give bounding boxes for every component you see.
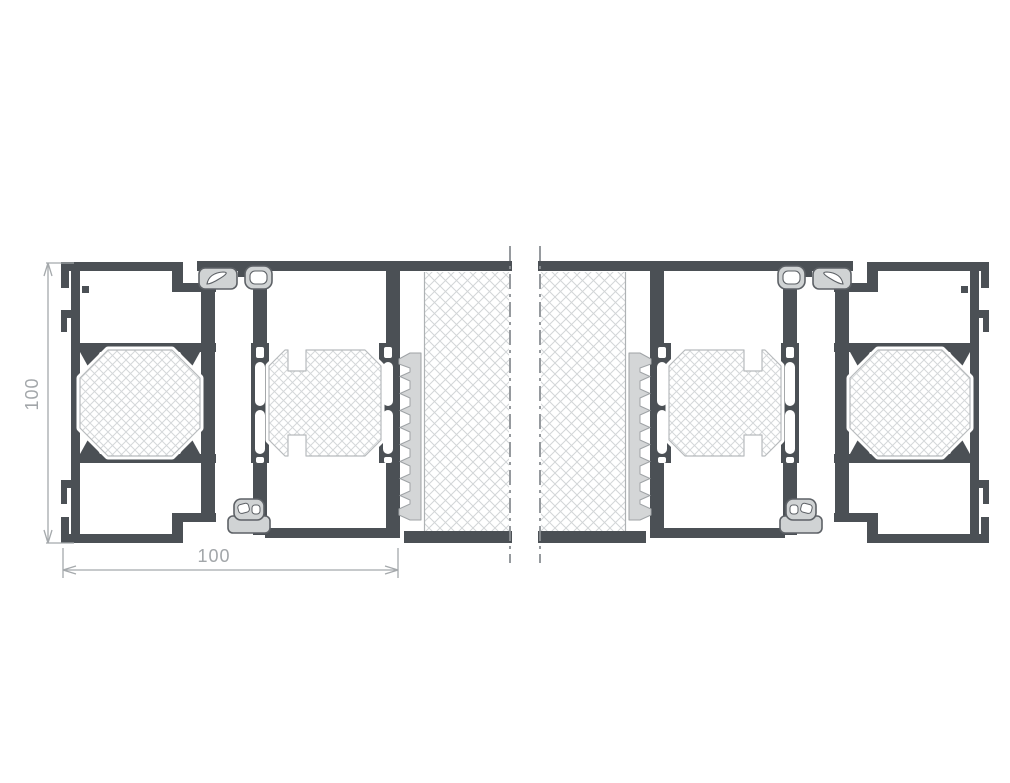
width-dimension-label: 100	[197, 546, 230, 566]
slot	[256, 347, 264, 358]
slot	[256, 457, 264, 463]
wall-panel	[424, 272, 509, 531]
frame-tab-lower-lip	[61, 480, 67, 504]
slot	[383, 362, 393, 406]
height-dimension-label: 100	[22, 377, 42, 410]
technical-drawing-page: 100 100	[0, 0, 1010, 783]
gasket-top	[199, 266, 272, 289]
thermal-break-insulation	[269, 350, 381, 456]
wall-panel-hatch	[424, 272, 509, 531]
profile-cross-section-drawing: 100 100	[0, 0, 1010, 783]
frame-bottom-wall	[63, 534, 177, 543]
brush-seal	[399, 353, 421, 520]
frame-inner-nub	[82, 286, 89, 293]
frame-top-corner-lip	[61, 262, 69, 288]
dimension-vertical	[44, 263, 74, 543]
frame-tab-upper-lip	[61, 310, 67, 332]
left-assembly	[61, 246, 512, 563]
frame-top-wall	[63, 262, 177, 271]
frame-bottom-corner-lip	[61, 517, 69, 543]
right-assembly	[538, 246, 989, 563]
sash-bottom-bar	[265, 528, 400, 538]
panel-bottom-bar	[404, 531, 512, 543]
slot	[384, 457, 392, 463]
slot	[383, 410, 393, 454]
slot	[255, 362, 265, 406]
thermal-break-insulation	[80, 350, 200, 456]
gasket-top-right-slot	[250, 271, 267, 284]
slot	[384, 347, 392, 358]
frame-ledge-bottom	[172, 513, 216, 522]
gasket-bottom-slot	[252, 505, 260, 514]
gasket-bottom	[228, 499, 270, 533]
frame-thermal-break	[80, 350, 200, 456]
sash-thermal-break	[269, 350, 381, 456]
slot	[255, 410, 265, 454]
